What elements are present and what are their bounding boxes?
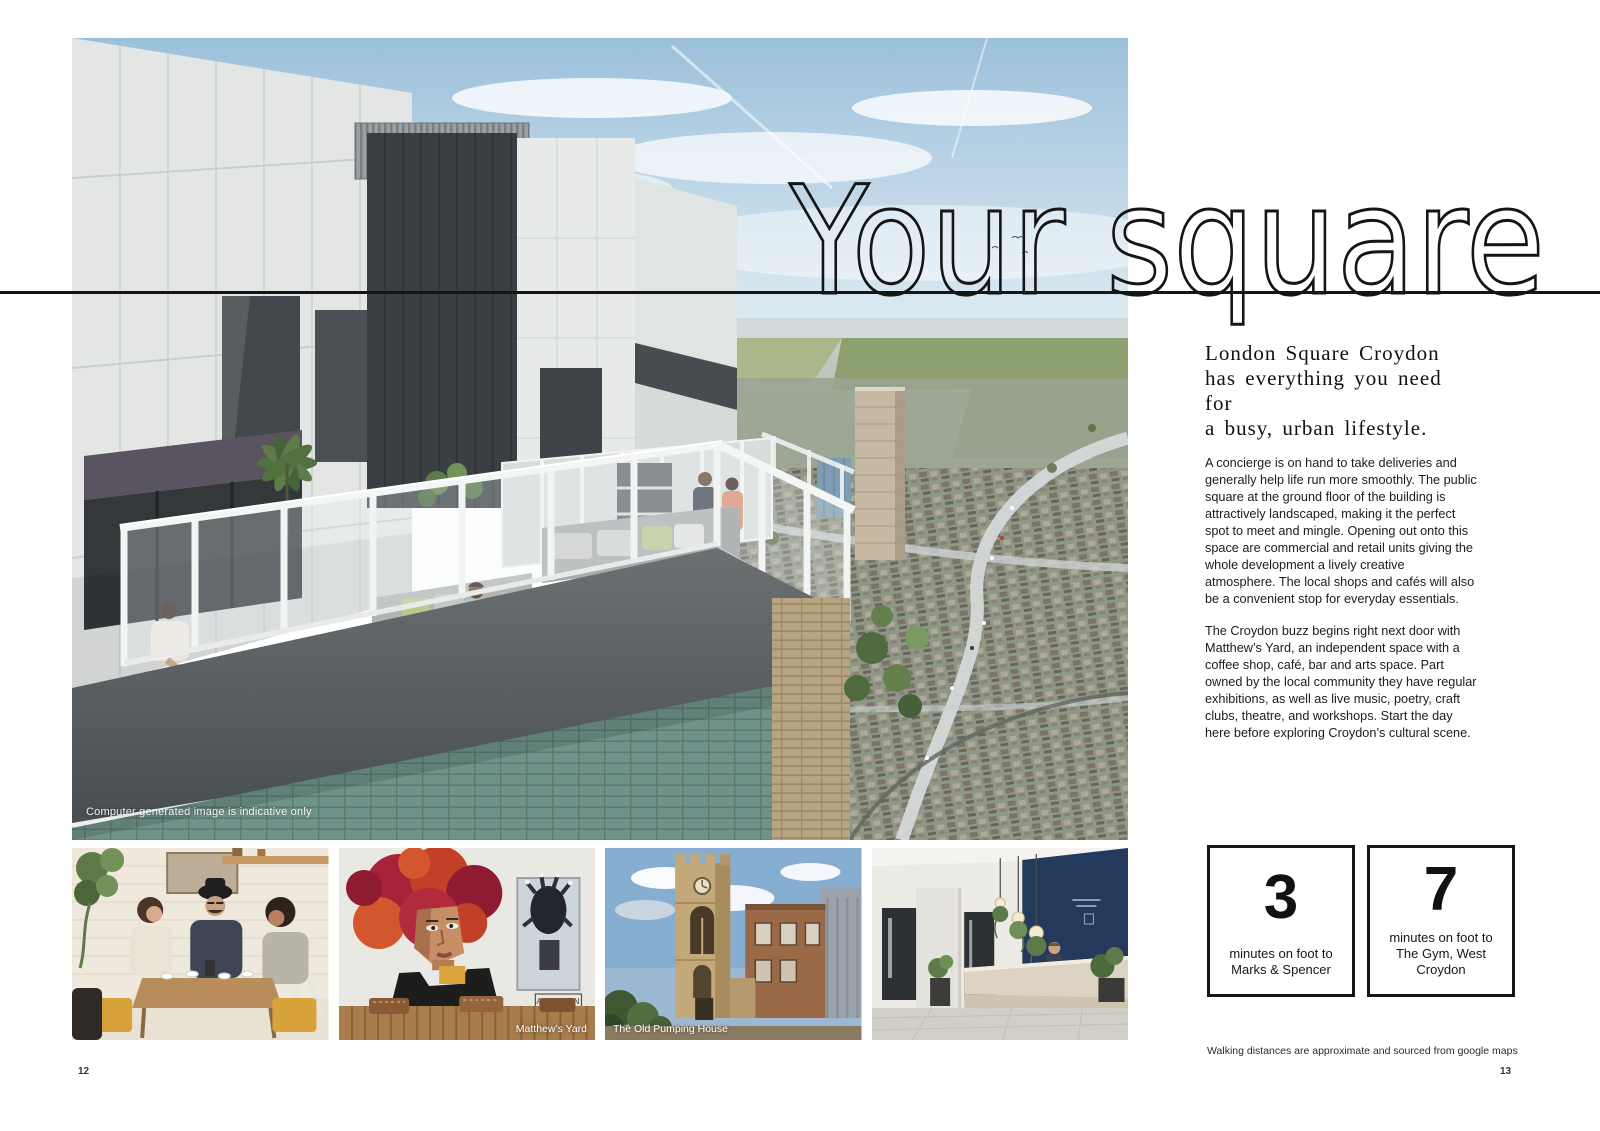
hero-caption: Computer generated image is indicative o… — [86, 806, 312, 818]
brochure-spread: Computer generated image is indicative o… — [0, 0, 1600, 1131]
outline-title: Your square — [778, 160, 1568, 345]
stat-caption: minutes on foot to The Gym, West Croydon — [1370, 930, 1512, 978]
photo-mural-matthews-yard: ALECLDN Matthew’s Yard — [339, 848, 596, 1040]
photo-caption-matthews-yard: Matthew’s Yard — [516, 1023, 587, 1035]
stat-caption-line-1: minutes on foot to — [1389, 930, 1492, 945]
stat-caption-line-2: The Gym, West Croydon — [1396, 946, 1486, 977]
stat-value: 7 — [1424, 850, 1458, 930]
page-number-right: 13 — [1500, 1066, 1511, 1077]
pumping-house-illustration — [605, 848, 862, 1040]
stat-caption-line-2: Marks & Spencer — [1231, 962, 1331, 977]
lobby-illustration — [872, 848, 1129, 1040]
mural-illustration: ALECLDN — [339, 848, 596, 1040]
heading-line-3: a busy, urban lifestyle. — [1205, 416, 1427, 440]
page-number-left: 12 — [78, 1066, 89, 1077]
stat-box-the-gym: 7 minutes on foot to The Gym, West Croyd… — [1367, 845, 1515, 997]
stat-caption: minutes on foot to Marks & Spencer — [1229, 946, 1332, 978]
article-heading: London Square Croydon has everything you… — [1205, 341, 1477, 441]
walking-distance-stats: 3 minutes on foot to Marks & Spencer 7 m… — [1207, 845, 1515, 997]
stat-value: 3 — [1264, 850, 1298, 946]
article-paragraph-1: A concierge is on hand to take deliverie… — [1205, 455, 1477, 608]
article-column: London Square Croydon has everything you… — [1205, 341, 1477, 757]
walking-distance-footnote: Walking distances are approximate and so… — [1207, 1045, 1518, 1057]
photo-lobby — [872, 848, 1129, 1040]
cafe-illustration — [72, 848, 329, 1040]
photo-old-pumping-house: The Old Pumping House — [605, 848, 862, 1040]
stat-box-marks-and-spencer: 3 minutes on foot to Marks & Spencer — [1207, 845, 1355, 997]
article-paragraph-2: The Croydon buzz begins right next door … — [1205, 623, 1477, 742]
photo-strip: ALECLDN Matthew’s Yard — [72, 848, 1128, 1040]
outline-title-text: Your square — [789, 155, 1545, 329]
photo-cafe — [72, 848, 329, 1040]
photo-caption-old-pumping-house: The Old Pumping House — [613, 1023, 728, 1035]
stat-caption-line-1: minutes on foot to — [1229, 946, 1332, 961]
heading-line-2: has everything you need for — [1205, 366, 1442, 415]
